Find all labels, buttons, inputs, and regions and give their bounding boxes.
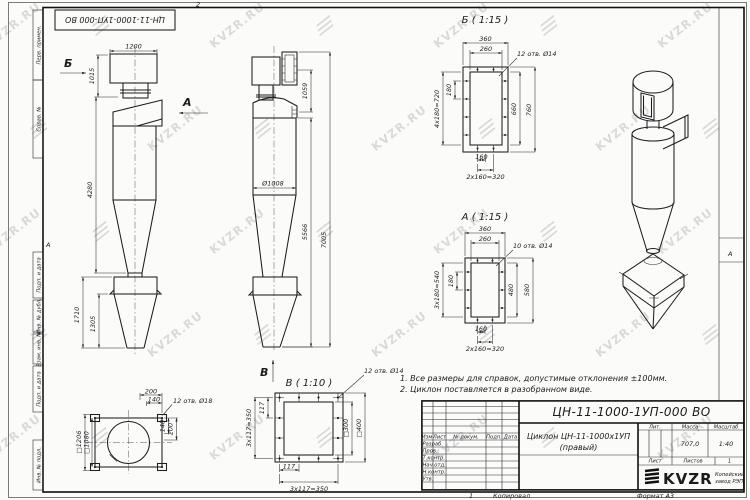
dim-140-right: 140 xyxy=(159,420,167,432)
dim-1015: 1015 xyxy=(88,68,96,85)
dim-3x117: 3х117=350 xyxy=(245,409,253,447)
plan-dimensions: 200 140 12 отв. Ø18 □1206 □1080 140 200 xyxy=(75,388,212,471)
dim-sq300: □300 xyxy=(342,419,350,438)
dim-160: 160 xyxy=(475,153,487,161)
dim-1305: 1305 xyxy=(89,316,97,333)
sheets-value: 1 xyxy=(728,459,731,465)
front-view-dimensions: 1200 Б 1015 4280 А 1710 1305 xyxy=(60,43,208,349)
section-view-a: А ( 1:15 ) 360 260 10 отв. Ø14 180 3х180… xyxy=(425,205,590,365)
part-name-line2: (правый) xyxy=(560,443,598,452)
row-utv: Утв. xyxy=(423,477,434,483)
dim-160: 160 xyxy=(475,325,487,333)
col-podp: Подп. xyxy=(486,435,502,441)
dim-580: 580 xyxy=(523,284,531,296)
zone-number-top: 2 xyxy=(196,1,200,9)
copied-by-label: Копировал xyxy=(493,492,530,500)
dim-1059: 1059 xyxy=(301,83,309,100)
cyclone-isometric-outline xyxy=(619,71,688,329)
dim-480: 480 xyxy=(507,284,515,296)
section-v-title: В ( 1:10 ) xyxy=(286,378,333,389)
mass-value: 707,0 xyxy=(681,440,700,448)
company-line1: Копейский xyxy=(715,472,745,478)
holes-label: 12 отв. Ø14 xyxy=(517,50,556,58)
holes-label: 10 отв. Ø14 xyxy=(513,242,552,250)
part-name-line1: Циклон ЦН-11-1000х1УП xyxy=(527,432,630,441)
dim-7005: 7005 xyxy=(320,232,328,249)
dim-200: 200 xyxy=(145,388,157,396)
doc-number: ЦН-11-1000-1УП-000 ВО xyxy=(552,405,710,419)
stamp-doc-number: ЦН-11-1000-1УП-000 ВО xyxy=(65,15,165,24)
logo-text: KVZR xyxy=(663,470,713,488)
bottom-sheet-number: 1 xyxy=(469,492,473,500)
col-doc: № докум. xyxy=(452,435,479,441)
dim-1008: Ø1008 xyxy=(261,180,284,188)
section-a-title: А ( 1:15 ) xyxy=(461,212,509,223)
dim-260: 260 xyxy=(480,45,492,53)
holes-label: 12 отв. Ø18 xyxy=(173,397,212,405)
cyclone-front-outline xyxy=(110,54,162,348)
frame-col-label: Инв. № подл. xyxy=(37,447,43,483)
front-view: 1200 Б 1015 4280 А 1710 1305 xyxy=(50,40,235,360)
view-arrow-b-label: Б xyxy=(64,57,72,70)
title-block: Изм Лист № докум. Подп. Дата Разраб. Про… xyxy=(421,400,745,491)
company-line2: завод РЭП xyxy=(715,479,743,485)
col-data: Дата xyxy=(503,435,517,441)
frame-col-label: Инв. № дубл. xyxy=(37,298,43,334)
dim-117: 117 xyxy=(258,401,266,414)
mass-label: Масса xyxy=(682,425,699,431)
dim-180: 180 xyxy=(447,275,455,287)
section-v-dimensions: 117 3х117=350 □300 □400 117 3х117=350 xyxy=(245,393,366,493)
view-arrow-a-label: А xyxy=(182,96,192,109)
sheets-label: Листов xyxy=(682,459,702,465)
row-nkontr: Н.контр. xyxy=(423,470,446,476)
section-b-title: Б ( 1:15 ) xyxy=(462,15,509,26)
dim-4280: 4280 xyxy=(86,182,94,199)
dim-2x160: 2х160=320 xyxy=(466,173,504,181)
dim-sq1080: □1080 xyxy=(83,431,91,454)
dim-4x180: 4х180=720 xyxy=(433,90,441,128)
section-a-dimensions: 360 260 10 отв. Ø14 180 3х180=540 480 58… xyxy=(433,225,552,353)
dim-3x117-bottom: 3х117=350 xyxy=(290,485,328,493)
title-block-text: Изм Лист № докум. Подп. Дата Разраб. Про… xyxy=(422,405,745,488)
frame-col-label: Справ. № xyxy=(37,106,43,131)
row-nachotd: Нач.отд. xyxy=(423,463,446,469)
dim-140: 140 xyxy=(148,396,160,404)
lit-label: Лит. xyxy=(648,425,661,431)
dim-sq400: □400 xyxy=(355,419,363,438)
sheet-label: Лист xyxy=(647,459,662,465)
flange-v-outline xyxy=(275,393,343,462)
scale-label: Масштаб xyxy=(714,425,739,431)
plan-view: 200 140 12 отв. Ø18 □1206 □1080 140 200 xyxy=(60,382,225,492)
scale-value: 1:40 xyxy=(719,440,734,448)
frame-col-label: Подп. и дата xyxy=(37,257,43,292)
dim-2x160: 2х160=320 xyxy=(466,345,504,353)
company-logo: KVZR xyxy=(645,470,713,489)
dim-260: 260 xyxy=(479,235,491,243)
col-list: Лист xyxy=(432,435,447,441)
row-tkontr: Т.контр. xyxy=(423,456,445,462)
frame-col-label: Взам. инв. № xyxy=(37,331,43,366)
note-line-2: 2. Циклон поставляется в разобранном вид… xyxy=(400,385,592,394)
dim-360: 360 xyxy=(479,35,491,43)
isometric-view xyxy=(575,55,745,355)
holes-label: 12 отв. Ø14 xyxy=(364,367,403,375)
dim-117-bottom: 117 xyxy=(283,463,296,471)
row-prov: Пров. xyxy=(423,449,438,455)
dim-200-right: 200 xyxy=(167,423,175,435)
side-view-dimensions: Ø1008 1059 5566 7005 В xyxy=(253,52,330,382)
drawing-sheet: KVZR.RUKVZR.RUKVZR.RUKVZR.RUKVZR.RUKVZR.… xyxy=(0,0,750,500)
section-b-dimensions: 360 260 12 отв. Ø14 180 4х180=720 660 76… xyxy=(433,35,556,181)
col-izm: Изм xyxy=(422,435,433,441)
side-view: Ø1008 1059 5566 7005 В xyxy=(240,40,350,385)
row-razrab: Разраб. xyxy=(423,442,443,448)
section-view-b: Б ( 1:15 ) 360 260 12 отв. Ø14 180 4х180… xyxy=(425,10,590,185)
dim-5566: 5566 xyxy=(301,224,309,241)
frame-col-label: Перв. примен. xyxy=(37,26,43,65)
cyclone-side-outline xyxy=(249,52,301,347)
flange-b-outline xyxy=(463,67,508,152)
dim-360: 360 xyxy=(479,225,491,233)
dim-760: 760 xyxy=(525,104,533,116)
dim-1710: 1710 xyxy=(73,307,81,324)
flange-a-outline xyxy=(465,258,505,323)
section-view-v: В ( 1:10 ) 12 отв. Ø14 117 3х117=350 □30… xyxy=(240,358,415,498)
dim-180: 180 xyxy=(445,84,453,96)
dim-3x180: 3х180=540 xyxy=(433,271,441,309)
dim-660: 660 xyxy=(510,103,518,115)
frame-col-label: Подп. и дата xyxy=(37,371,43,406)
note-line-1: 1. Все размеры для справок, допустимые о… xyxy=(400,374,667,383)
dim-1200: 1200 xyxy=(125,43,142,51)
format-label: Формат А3 xyxy=(637,492,674,500)
